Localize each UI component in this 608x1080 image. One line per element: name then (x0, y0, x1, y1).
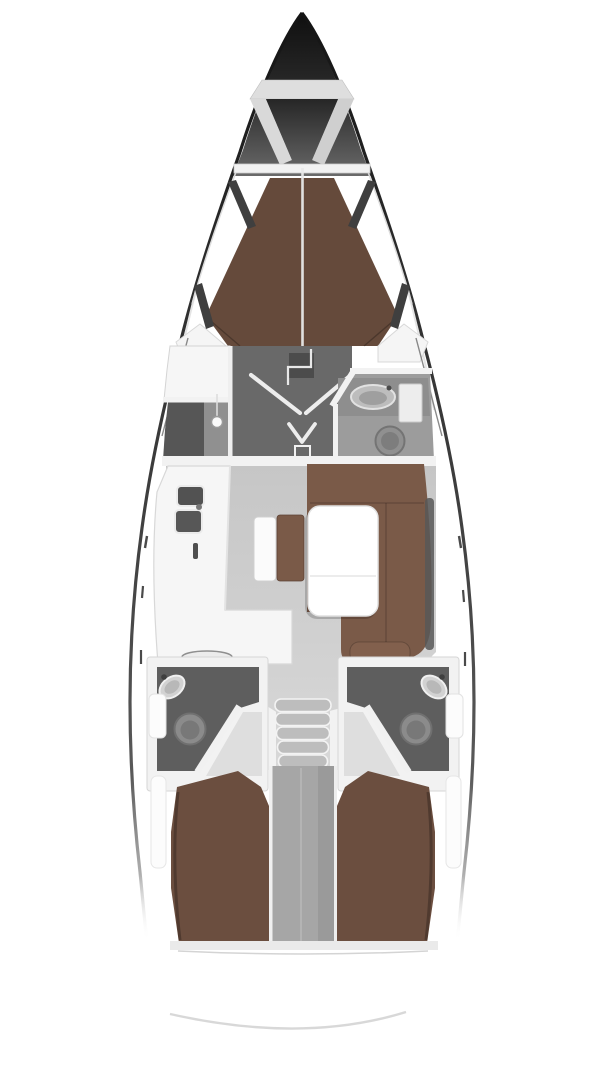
salon-table (308, 506, 378, 616)
fwd-head-sink-basin (359, 391, 387, 405)
aft-berth-port (171, 771, 269, 943)
aft-head-port-faucet (161, 674, 167, 680)
hull-panel-port (151, 776, 166, 868)
step-3 (277, 727, 330, 740)
galley-faucet (196, 504, 202, 510)
hull-panel-starboard (446, 776, 461, 868)
berth-foot-strip (170, 941, 438, 950)
aft-head-stbd-toilet-bowl (407, 721, 426, 740)
aft-head-starboard (338, 657, 459, 791)
aft-head-port-toilet-bowl (181, 721, 200, 740)
engine-bay-edge-stbd (334, 766, 337, 944)
fwd-head-cabinet (399, 384, 422, 422)
step-5 (279, 755, 328, 768)
chainplate-mark (463, 590, 464, 602)
chainplate-mark (142, 586, 143, 598)
galley-handle (193, 543, 198, 559)
mattress-center-split (301, 168, 304, 346)
engine-bay-edge-port (269, 766, 273, 944)
yacht-floor-plan (0, 0, 608, 1080)
step-4 (278, 741, 329, 754)
settee-hull-locker (425, 498, 434, 650)
fwd-head-side-wall (333, 404, 338, 462)
hull-locker-port (149, 694, 166, 738)
center-bench-white (254, 517, 276, 581)
hull-locker-starboard (446, 694, 463, 738)
galley-sink-2 (175, 510, 202, 533)
center-bench-cushion (277, 515, 304, 581)
transom-edge (178, 951, 428, 954)
step-1 (275, 699, 331, 712)
shower-head (212, 417, 223, 428)
vestibule-port-wall (228, 346, 233, 462)
fwd-head-top-wall (350, 368, 432, 374)
port-dresser (164, 346, 230, 400)
engine-bay-shade (318, 766, 334, 944)
shower-stall-dark (163, 402, 204, 460)
aft-head-stbd-faucet (439, 674, 445, 680)
fwd-head-faucet (387, 386, 392, 391)
shower-top-wall (163, 397, 233, 403)
shower-stall-light (204, 402, 232, 460)
stern (170, 1012, 406, 1029)
step-2 (276, 713, 331, 726)
fwd-head-toilet-bowl (381, 432, 399, 450)
locker-top-bar (250, 80, 354, 99)
galley-sink-1 (177, 486, 204, 506)
aft-berth-starboard (337, 771, 435, 943)
swim-platform-arc (170, 1012, 406, 1029)
